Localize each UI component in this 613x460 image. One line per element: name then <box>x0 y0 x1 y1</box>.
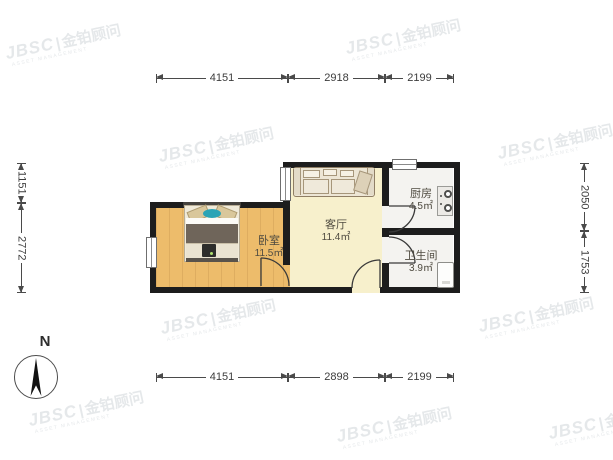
compass-needle-icon <box>27 358 45 396</box>
dim-top-2-value: 2918 <box>320 72 352 84</box>
dim-top-1: 4151 <box>156 72 288 84</box>
sofa-seat-cushion-1 <box>303 179 329 194</box>
dim-bottom-2: 2898 <box>288 371 385 383</box>
dim-right-1-value: 2050 <box>579 182 591 212</box>
bed <box>183 202 241 262</box>
livingroom-window <box>280 167 291 201</box>
dim-left-2: 2772 <box>15 203 28 293</box>
dim-right-2: 1753 <box>578 231 591 293</box>
bathroom-name: 卫生间 <box>391 251 451 263</box>
kitchen-label: 厨房 4.5㎡ <box>391 189 451 212</box>
brand-watermark: JBSC|金铂顾问ASSET MANAGEMENT <box>157 124 277 172</box>
brand-watermark: JBSC|金铂顾问ASSET MANAGEMENT <box>496 121 613 169</box>
bathroom-area: 3.9㎡ <box>391 264 451 275</box>
compass-icon <box>14 355 58 399</box>
bedroom-door-arc <box>258 255 292 289</box>
dim-top-3-value: 2199 <box>403 72 435 84</box>
floorplan-canvas: JBSC|金铂顾问ASSET MANAGEMENTJBSC|金铂顾问ASSET … <box>0 0 613 460</box>
brand-watermark: JBSC|金铂顾问ASSET MANAGEMENT <box>159 296 279 344</box>
bed-footboard <box>186 258 238 262</box>
sofa-seat-cushion-2 <box>331 179 355 194</box>
dim-top-1-value: 4151 <box>206 72 238 84</box>
dim-bottom-3: 2199 <box>385 371 454 383</box>
brand-watermark: JBSC|金铂顾问ASSET MANAGEMENT <box>335 404 455 452</box>
dim-left-2-value: 2772 <box>16 233 28 263</box>
dim-top-3: 2199 <box>385 72 454 84</box>
brand-watermark: JBSC|金铂顾问ASSET MANAGEMENT <box>4 21 124 69</box>
brand-watermark: JBSC|金铂顾问ASSET MANAGEMENT <box>547 401 613 449</box>
livingroom-name: 客厅 <box>306 220 366 232</box>
sofa <box>293 167 375 197</box>
wall-living-divider-bottom <box>382 263 389 287</box>
entry-door-arc <box>349 257 383 291</box>
bed-tv-device <box>202 244 216 257</box>
sofa-back-cushion-1 <box>303 170 320 178</box>
bedroom-window <box>146 237 157 268</box>
washer-detail-line <box>442 281 450 284</box>
wall-living-kitchen-divider-top <box>382 162 389 206</box>
dim-bottom-1: 4151 <box>156 371 288 383</box>
livingroom-area: 11.4㎡ <box>306 233 366 244</box>
bathroom-label: 卫生间 3.9㎡ <box>391 251 451 274</box>
dim-top-2: 2918 <box>288 72 385 84</box>
sofa-back-cushion-2 <box>323 169 337 176</box>
north-label: N <box>36 333 54 350</box>
brand-watermark: JBSC|金铂顾问ASSET MANAGEMENT <box>477 294 597 342</box>
dim-bottom-3-value: 2199 <box>403 371 435 383</box>
bedroom-name: 卧室 <box>237 236 301 248</box>
sofa-back-cushion-3 <box>340 170 354 177</box>
kitchen-name: 厨房 <box>391 189 451 201</box>
dim-left-1: 1151 <box>15 163 28 203</box>
kitchen-window <box>392 159 417 170</box>
livingroom-label: 客厅 11.4㎡ <box>306 220 366 243</box>
bed-teal-cushion <box>203 209 221 218</box>
dim-bottom-2-value: 2898 <box>320 371 352 383</box>
dim-right-2-value: 1753 <box>579 247 591 277</box>
dim-right-1: 2050 <box>578 163 591 231</box>
sofa-arm-left <box>294 168 301 195</box>
brand-watermark: JBSC|金铂顾问ASSET MANAGEMENT <box>344 16 464 64</box>
wall-bottom-left <box>150 287 352 293</box>
wall-right <box>454 162 460 293</box>
bed-device-led <box>210 252 213 255</box>
bedroom-area: 11.5㎡ <box>237 249 301 260</box>
kitchen-area: 4.5㎡ <box>391 202 451 213</box>
dim-left-1-value: 1151 <box>16 168 28 198</box>
bed-duvet <box>186 224 238 243</box>
bedroom-label: 卧室 11.5㎡ <box>237 236 301 259</box>
dim-bottom-1-value: 4151 <box>206 371 238 383</box>
